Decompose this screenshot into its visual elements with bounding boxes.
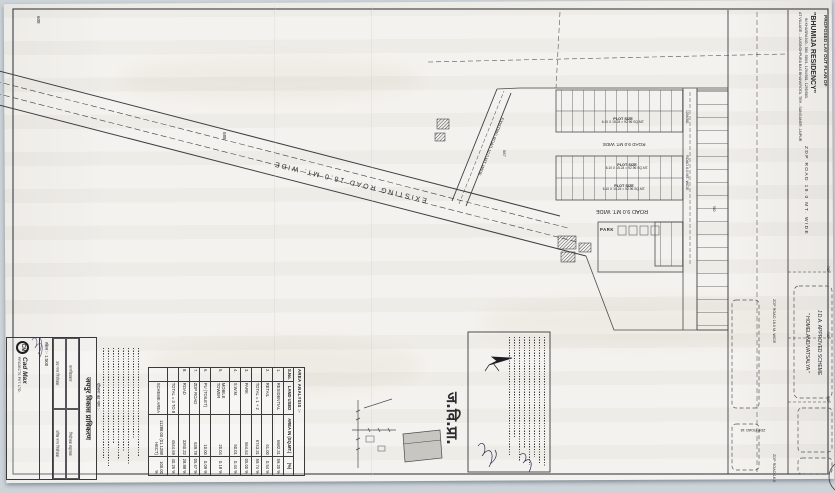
zdp-road-bottom-label: ZDP ROAD 18.0	[772, 446, 776, 490]
table-row: 5.MOBILE TOWER20.040.18 %	[211, 368, 230, 476]
designation-cell: वरिष्ठ नगर नियोजक	[53, 409, 66, 480]
khasra-boundaries	[428, 12, 786, 88]
zdp-road-top-label: ZDP ROAD 18.0 MT. WIDE	[803, 143, 808, 238]
table-row: 1.RESIDENTIAL6682.3159.20 %	[273, 368, 284, 476]
plot-size-label-3: PLOT SIZE 6.10 X 15.24 = 92.96 SQ.MT.	[601, 184, 647, 192]
existing-road-10	[452, 89, 511, 206]
table-row: SCHEME AREA11288.00 (01.1288 HECT)100.00…	[149, 368, 168, 476]
cadmax-logo-sub: PROJECTS PVT. LTD.	[18, 357, 22, 393]
road-6-label: ROAD 6.0 MT. WIDE	[685, 142, 689, 204]
zdp-road-right-label: ZDP ROAD 18.0 M. WIDE	[772, 292, 776, 350]
north-arrow-icon	[485, 357, 512, 371]
cadmax-logo-icon: CM	[17, 341, 30, 354]
table-row: 7.ZDP ROAD639.7805.67 %	[189, 368, 200, 476]
existing-road-18	[0, 70, 586, 256]
col-sno: S.No.	[283, 368, 294, 382]
col-pct: (%)	[283, 456, 294, 475]
designation-cell: मानचित्रकार	[66, 338, 79, 409]
table-row: 3.PARK564.6405.00 %	[241, 368, 252, 476]
area-table-title: AREA ANALYSIS :-	[294, 368, 305, 476]
site-shaded-polygon	[403, 430, 442, 462]
road-9-label-a: ROAD 9.0 MT. WIDE	[592, 142, 656, 147]
plot-size-line2: 6.10 X 15.24 = 92.96 SQ.MT.	[600, 121, 646, 125]
khasra-580: 580	[712, 206, 716, 218]
table-row: TOTAL = 3 TO 84544.6940.26 %	[168, 368, 179, 476]
zdp-road-flip-label: ZDP ROAD 18	[730, 428, 776, 432]
designation-cell: उप नगर नियोजक	[53, 338, 66, 409]
ro-label-2: RO	[826, 332, 830, 342]
scale-note: स्केल :- 1:500	[39, 338, 52, 479]
khasra-588: 588	[222, 132, 227, 148]
table-row: 8.ROAD3260.2228.88 %	[179, 368, 190, 476]
fold-crease	[371, 6, 373, 476]
authority-name: जयपुर विकास प्राधिकरण	[79, 338, 96, 479]
plan-linework	[0, 0, 835, 493]
zdp-corridor	[728, 10, 833, 474]
table-row: 2.RETAIL61.000.54 %	[262, 368, 273, 476]
park-label: PARK	[600, 227, 614, 232]
scheme-name-label: योजना का नाम :-	[95, 383, 101, 443]
area-analysis-table: AREA ANALYSIS :- S.No. LAND USED AREA IN…	[148, 367, 305, 476]
plan-title-line4: AT VILLAGE :- JAISINGHPURA BAS BHANKROTA…	[798, 12, 802, 116]
signature-cells: मानचित्रकार नियोजक सहायक उप नगर नियोजक व…	[52, 338, 79, 479]
location-key-map	[352, 399, 442, 468]
khasra-608: 608	[36, 16, 41, 36]
ro-label-3: RO	[826, 396, 830, 406]
table-row: 6.PU (TOILET)10.000.09 %	[200, 368, 211, 476]
plot-size-label-2: PLOT SIZE 6.10 X 15.24 = 92.96 SQ.MT.	[604, 163, 650, 171]
designation-cell: नियोजक सहायक	[66, 409, 79, 480]
ro-label-1: RO	[826, 266, 830, 276]
jda-scheme-line1: J.D.A. APPROVED SCHEME	[816, 288, 822, 398]
plan-title-line2: "BHUMIJA RESIDENCY"	[809, 10, 816, 96]
jda-scheme-line2: " HOMELAND/VATSALYA "	[804, 288, 810, 398]
jvp-mark: ज.वि.प्रा.	[442, 392, 462, 474]
plot-size-label-1: PLOT SIZE 6.10 X 15.24 = 92.96 SQ.MT.	[600, 117, 646, 125]
stamp-block: जयपुर विकास प्राधिकरण मानचित्रकार नियोजक…	[8, 337, 97, 478]
road-9-label-b: ROAD 9.0 MT. WIDE	[584, 208, 660, 214]
cadmax-logo-name: Cad Max	[22, 357, 29, 393]
khasra-1294-581: 1294/581	[685, 110, 689, 140]
plan-title-line3: IN KHASRA NO.- 580, 580/1, 1294/581, 129…	[804, 12, 808, 104]
table-row: TOTAL = 1 + 26743.3159.74 %	[251, 368, 262, 476]
table-row: 4.S.W.M.50.010.44 %	[230, 368, 241, 476]
plan-title-line1: PROPOSED LAY OUT PLAN OF	[822, 12, 827, 90]
col-area: AREA IN (SQ.MT.)	[283, 415, 294, 456]
drafter-logo-row: CM Cad Max PROJECTS PVT. LTD.	[7, 338, 39, 479]
scanned-layout-plan: { "doc": { "type_note": "scanned site la…	[0, 0, 835, 493]
plot-size-line2: 6.10 X 15.24 = 92.96 SQ.MT.	[601, 188, 647, 192]
khasra-587: 587	[502, 150, 507, 164]
col-landused: LAND USED	[283, 381, 294, 415]
plot-size-line2: 6.10 X 15.24 = 92.96 SQ.MT.	[604, 167, 650, 171]
